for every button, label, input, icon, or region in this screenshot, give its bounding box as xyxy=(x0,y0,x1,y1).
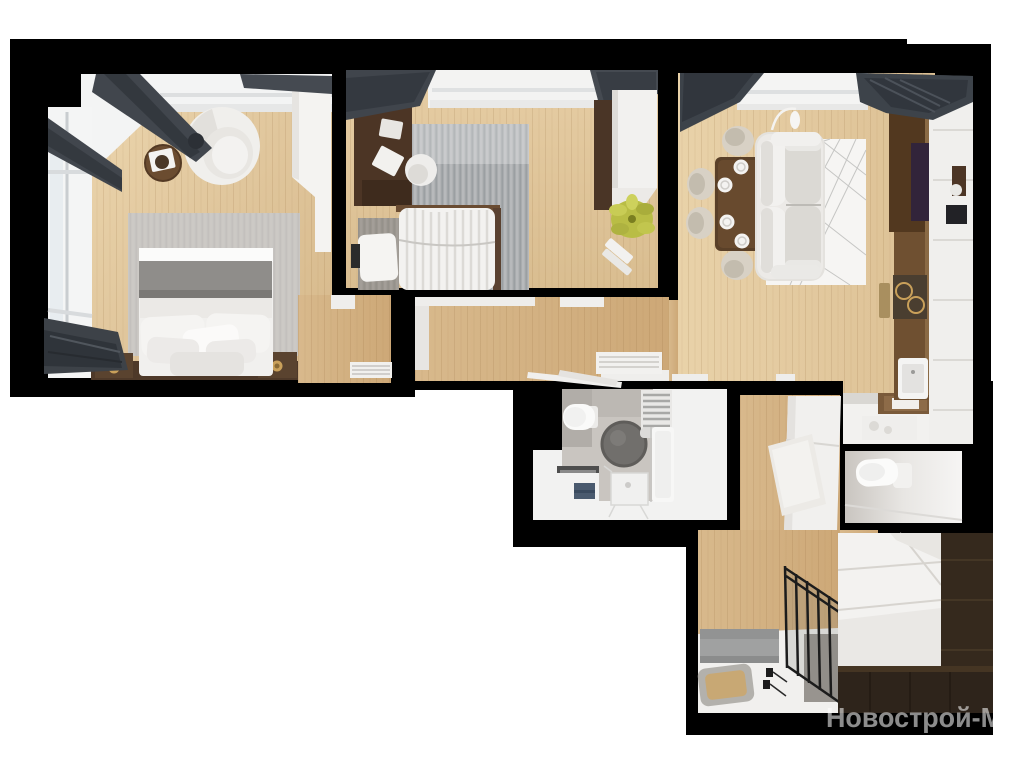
svg-text:Новострой-М: Новострой-М xyxy=(826,702,1003,733)
